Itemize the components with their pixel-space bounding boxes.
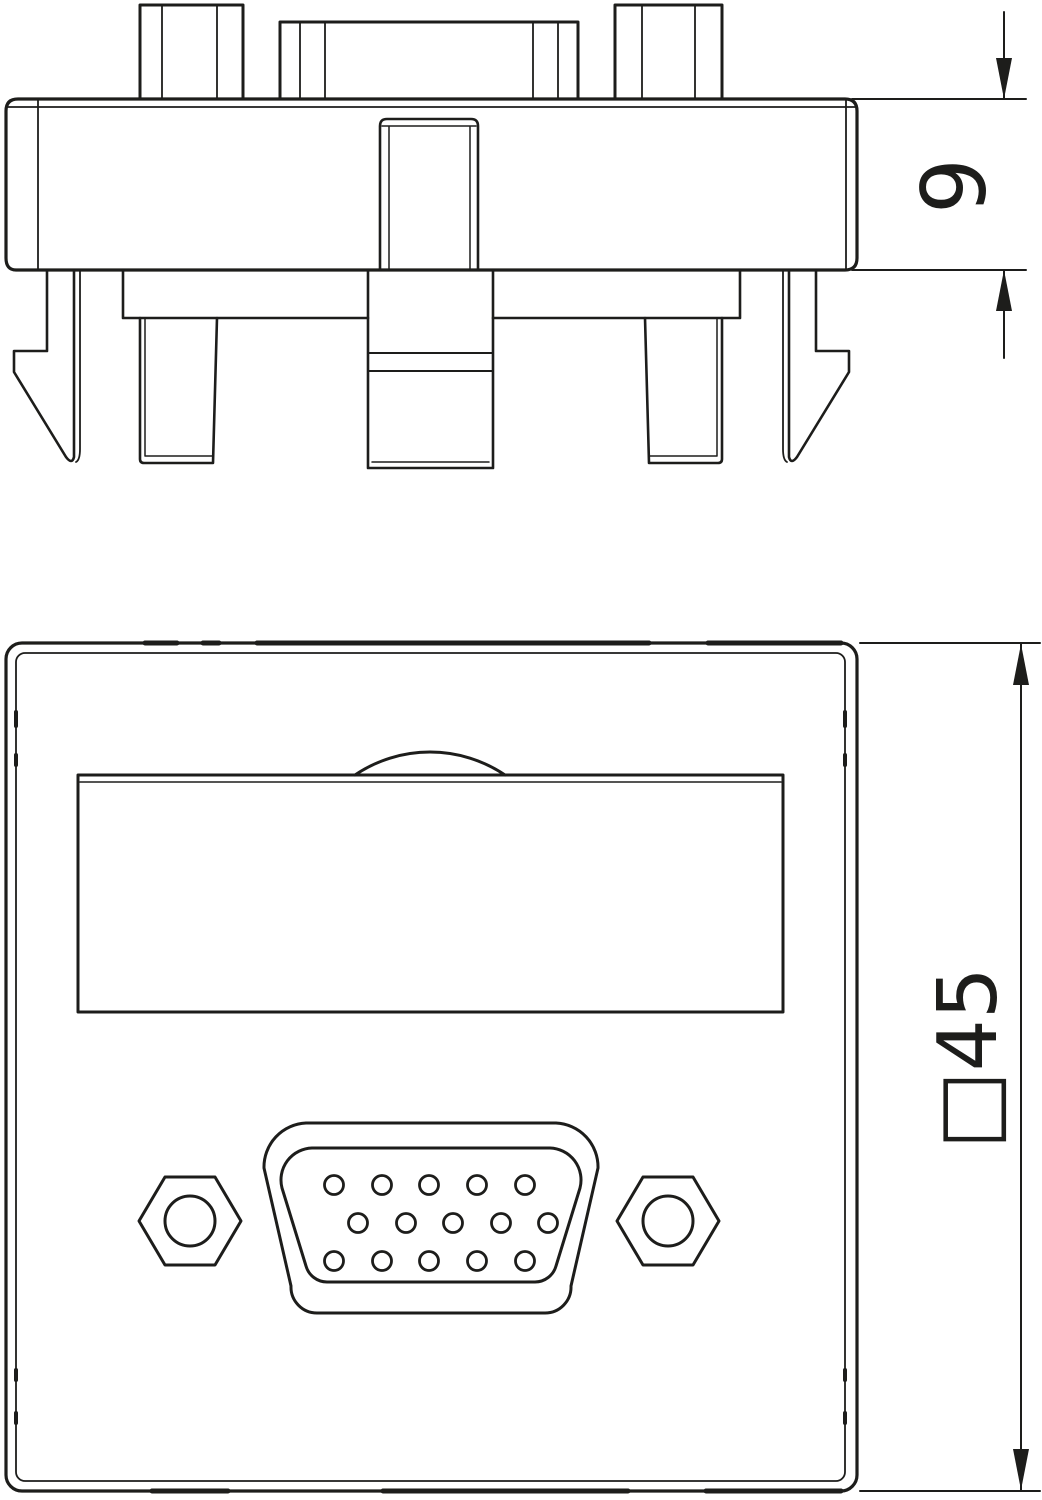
arrowhead-down bbox=[1013, 1449, 1029, 1490]
technical-drawing-page: 9 bbox=[0, 0, 1042, 1500]
frame-band bbox=[6, 99, 857, 270]
foot-center bbox=[368, 270, 493, 468]
vga-shell-inner bbox=[281, 1148, 581, 1282]
dimension-9-label: 9 bbox=[903, 158, 1006, 214]
front-view bbox=[6, 643, 857, 1491]
cover-plate bbox=[6, 643, 857, 1491]
rear-connector-shell bbox=[280, 22, 578, 99]
arrowhead-down bbox=[996, 58, 1012, 99]
vga-shell-outer bbox=[264, 1123, 598, 1313]
arrowhead-up bbox=[1013, 644, 1029, 685]
vga-connector bbox=[139, 1123, 719, 1313]
rear-post-right bbox=[615, 5, 722, 99]
fixing-nut-left bbox=[139, 1177, 241, 1265]
vga-pin-holes bbox=[325, 1176, 558, 1271]
snap-hook-left bbox=[14, 271, 80, 462]
rear-post-left bbox=[140, 5, 243, 99]
vga-module-drawing: 9 bbox=[0, 0, 1042, 1500]
dimension-45: □45 bbox=[860, 643, 1040, 1491]
mounting-ledge bbox=[123, 270, 740, 318]
snap-hook-right bbox=[783, 271, 849, 462]
arrowhead-up bbox=[996, 270, 1012, 311]
foot-right bbox=[645, 318, 722, 463]
foot-left bbox=[140, 318, 217, 463]
central-latch bbox=[380, 119, 478, 270]
fixing-nut-right bbox=[617, 1177, 719, 1265]
dimension-45-label: □45 bbox=[921, 967, 1016, 1149]
thumb-recess-arc bbox=[355, 752, 505, 775]
side-view bbox=[6, 5, 857, 468]
label-field bbox=[78, 752, 783, 1012]
dimension-9: 9 bbox=[852, 12, 1026, 358]
